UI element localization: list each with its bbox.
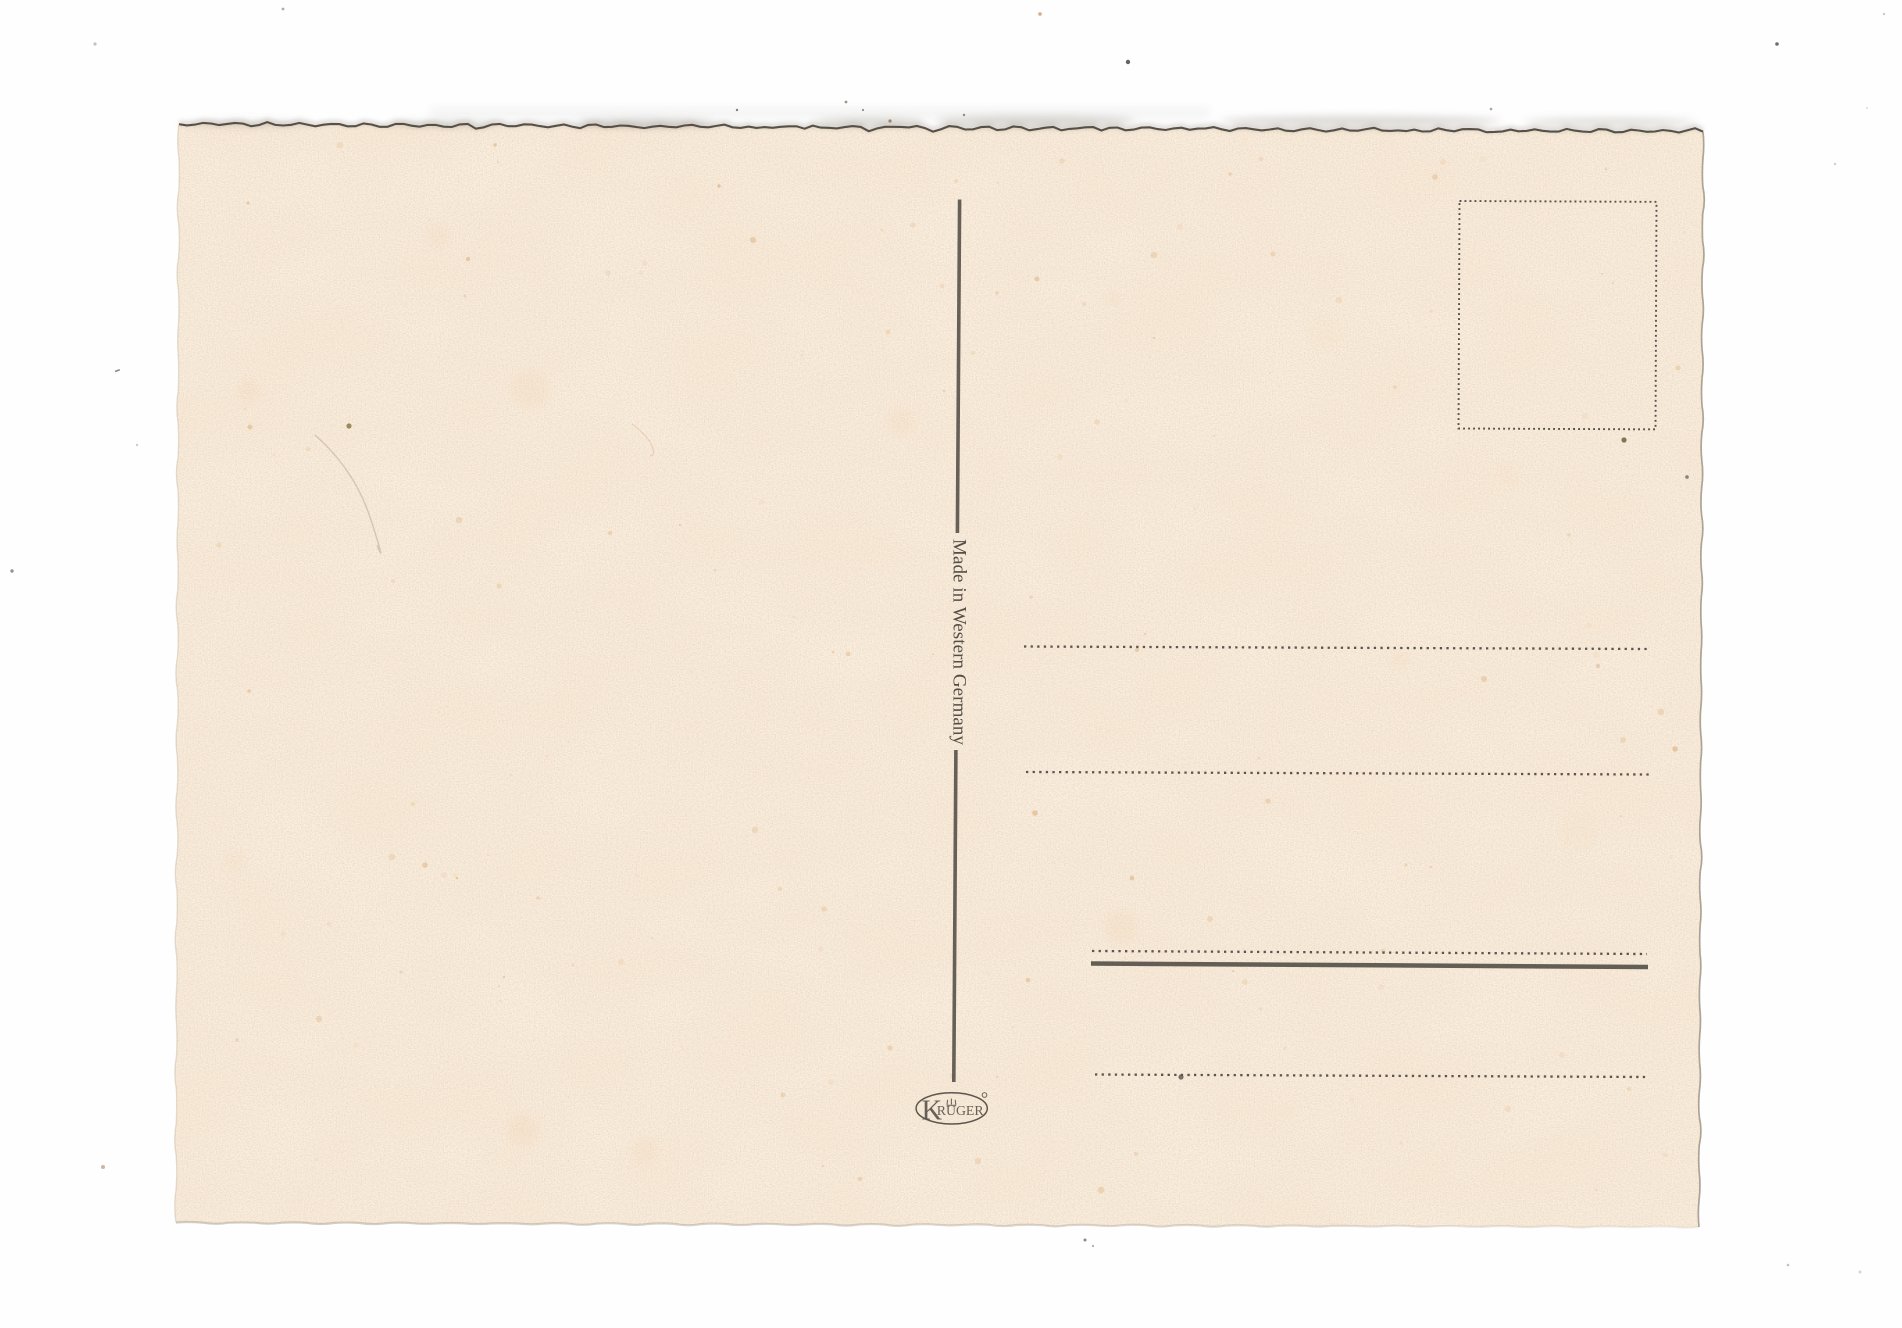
svg-text:Made in Western Germany: Made in Western Germany — [948, 539, 969, 746]
svg-text:RUGER: RUGER — [937, 1103, 985, 1118]
